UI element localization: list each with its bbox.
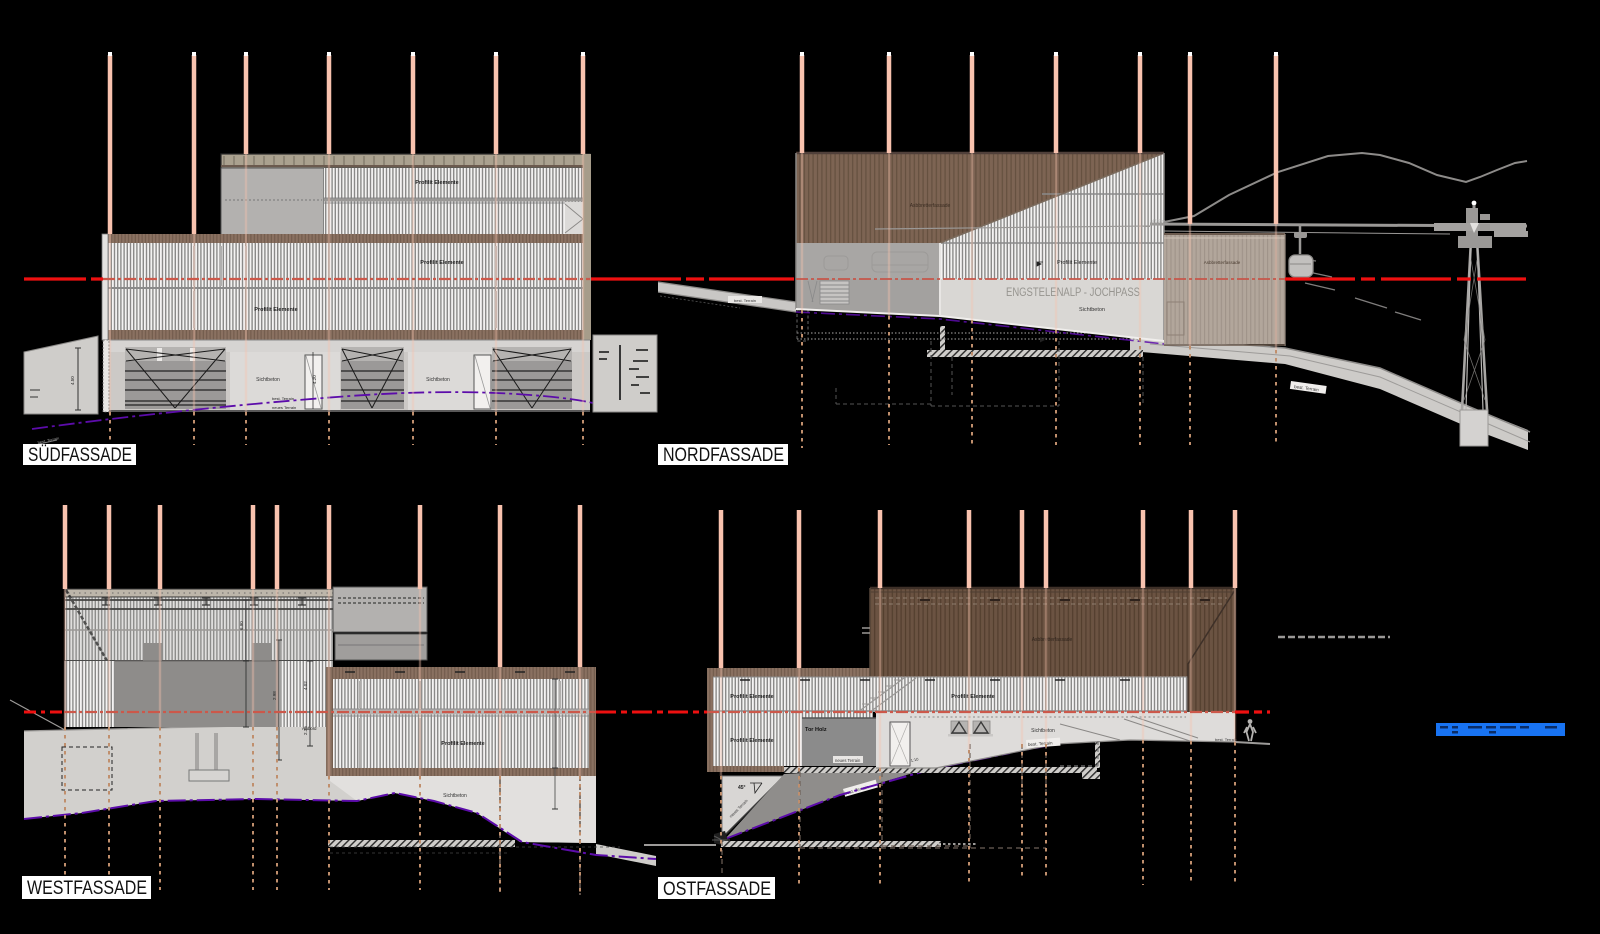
svg-text:Asbbretterfassade: Asbbretterfassade: [1032, 637, 1073, 643]
svg-text:Profilit Elemente: Profilit Elemente: [730, 694, 773, 700]
svg-text:4.50: 4.50: [70, 376, 75, 385]
svg-text:Profilit Elemente: Profilit Elemente: [1057, 260, 1097, 266]
svg-text:neues Terrain: neues Terrain: [835, 758, 861, 763]
svg-text:Sichtbeton: Sichtbeton: [443, 793, 467, 799]
svg-text:best. Terrain: best. Terrain: [272, 396, 294, 401]
svg-text:Profilit Elemente: Profilit Elemente: [441, 741, 484, 747]
svg-text:SÜDFASSADE: SÜDFASSADE: [28, 445, 132, 466]
svg-text:Asbbretterfassade: Asbbretterfassade: [910, 203, 951, 209]
svg-text:Asbbretterfassade: Asbbretterfassade: [1204, 260, 1241, 265]
svg-text:Profilit Elemente: Profilit Elemente: [415, 180, 458, 186]
svg-text:ENGSTELENALP - JOCHPASS: ENGSTELENALP - JOCHPASS: [1006, 287, 1140, 299]
svg-text:Sichtbeton: Sichtbeton: [426, 377, 450, 383]
svg-text:45°: 45°: [738, 785, 746, 791]
svg-text:Sichtbeton: Sichtbeton: [1031, 728, 1055, 734]
svg-text:NORDFASSADE: NORDFASSADE: [663, 445, 784, 466]
svg-text:Profilit Elemente: Profilit Elemente: [951, 694, 994, 700]
svg-text:4.02: 4.02: [303, 681, 308, 690]
svg-text:Sichtbeton: Sichtbeton: [1079, 307, 1105, 313]
svg-text:Alubord: Alubord: [302, 726, 317, 731]
svg-text:Sichtbeton: Sichtbeton: [256, 377, 280, 383]
svg-text:4780 m: 4780 m: [1152, 218, 1166, 223]
svg-text:best. Terrain: best. Terrain: [734, 298, 756, 303]
svg-text:Profilit Elemente: Profilit Elemente: [730, 738, 773, 744]
svg-text:6.90: 6.90: [239, 621, 244, 630]
svg-text:Profilit Elemente: Profilit Elemente: [254, 307, 297, 313]
svg-text:Profilit Elemente: Profilit Elemente: [420, 260, 463, 266]
svg-text:OSTFASSADE: OSTFASSADE: [663, 879, 771, 900]
svg-text:4.20: 4.20: [312, 375, 317, 384]
svg-text:best. Terrain: best. Terrain: [1215, 737, 1237, 742]
svg-text:neues Terrain: neues Terrain: [272, 405, 296, 410]
svg-text:WESTFASSADE: WESTFASSADE: [27, 878, 147, 899]
svg-text:Tor Holz: Tor Holz: [805, 727, 827, 733]
